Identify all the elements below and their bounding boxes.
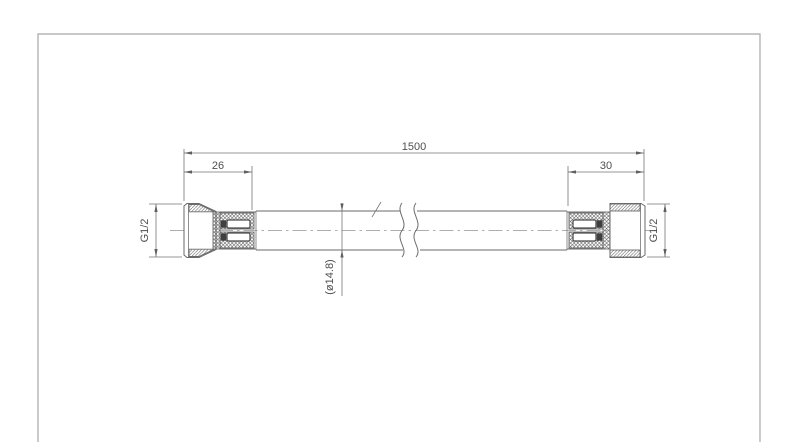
arrowhead-right bbox=[244, 170, 252, 173]
left-insert-bottom bbox=[227, 233, 250, 241]
left-seal-top bbox=[221, 221, 226, 228]
left-insert-top bbox=[227, 220, 250, 228]
dimension-right-fitting-length: 30 bbox=[568, 160, 644, 206]
drawing-page: 1500 26 30 G1/2 G1/2 (ø14 bbox=[0, 0, 800, 442]
arrowhead-top bbox=[154, 204, 157, 212]
dimension-right-thread: G1/2 bbox=[647, 204, 670, 257]
left-seal-bottom bbox=[221, 234, 226, 241]
hose-body bbox=[256, 202, 567, 257]
break-curve-left bbox=[400, 203, 404, 257]
right-nut-top-wall-hatch bbox=[610, 204, 640, 211]
right-fitting bbox=[567, 204, 645, 258]
right-seal-top bbox=[597, 221, 602, 228]
dim-text-left-thread: G1/2 bbox=[139, 219, 151, 243]
right-gasket bbox=[603, 212, 610, 249]
left-nut-top-wall-hatch bbox=[189, 205, 215, 212]
arrowhead-left bbox=[184, 170, 192, 173]
dim-text-hose-diameter: (ø14.8) bbox=[324, 259, 336, 294]
dimension-left-fitting-length: 26 bbox=[184, 160, 252, 210]
left-gasket bbox=[213, 212, 220, 249]
dim-text-overall-length: 1500 bbox=[402, 141, 426, 153]
right-nut-outline bbox=[610, 204, 645, 258]
arrowhead-top bbox=[663, 204, 666, 212]
left-nut-bottom-wall-hatch bbox=[189, 249, 215, 256]
dim-text-right-fitting-length: 30 bbox=[600, 160, 612, 172]
arrowhead-bottom bbox=[340, 250, 343, 258]
drawing-canvas: 1500 26 30 G1/2 G1/2 (ø14 bbox=[0, 0, 800, 442]
arrowhead-top bbox=[340, 204, 343, 212]
surface-tick-mark bbox=[372, 202, 381, 217]
dim-text-left-fitting-length: 26 bbox=[212, 160, 224, 172]
right-nut-bottom-wall-hatch bbox=[610, 250, 640, 257]
arrowhead-left bbox=[184, 151, 192, 154]
right-insert-top bbox=[573, 220, 596, 228]
right-seal-bottom bbox=[597, 234, 602, 241]
arrowhead-right bbox=[636, 151, 644, 154]
right-insert-bottom bbox=[573, 233, 596, 241]
dim-text-right-thread: G1/2 bbox=[648, 219, 660, 243]
arrowhead-left bbox=[568, 170, 576, 173]
arrowhead-right bbox=[636, 170, 644, 173]
arrowhead-bottom bbox=[154, 249, 157, 257]
arrowhead-bottom bbox=[663, 249, 666, 257]
break-symbol bbox=[400, 203, 418, 257]
